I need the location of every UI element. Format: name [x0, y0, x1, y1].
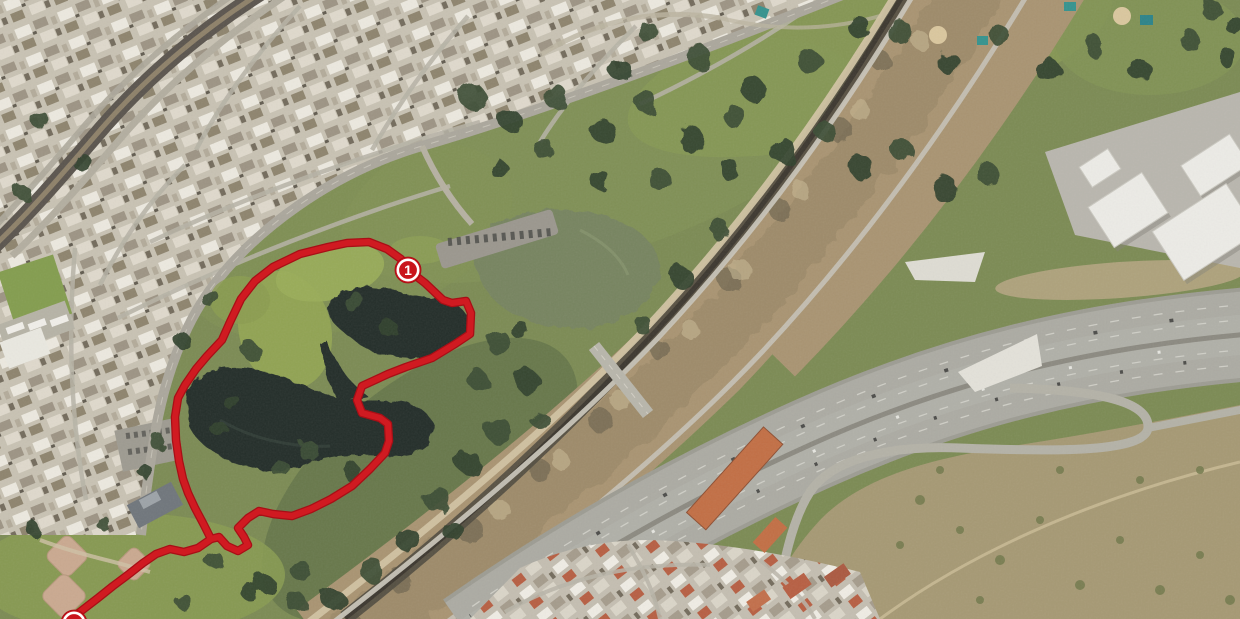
- satellite-map[interactable]: 1: [0, 0, 1240, 619]
- route-marker-1[interactable]: 1: [395, 257, 421, 283]
- haze-overlay: [0, 0, 1240, 619]
- satellite-imagery: 1: [0, 0, 1240, 619]
- route-marker-label: 1: [404, 262, 412, 278]
